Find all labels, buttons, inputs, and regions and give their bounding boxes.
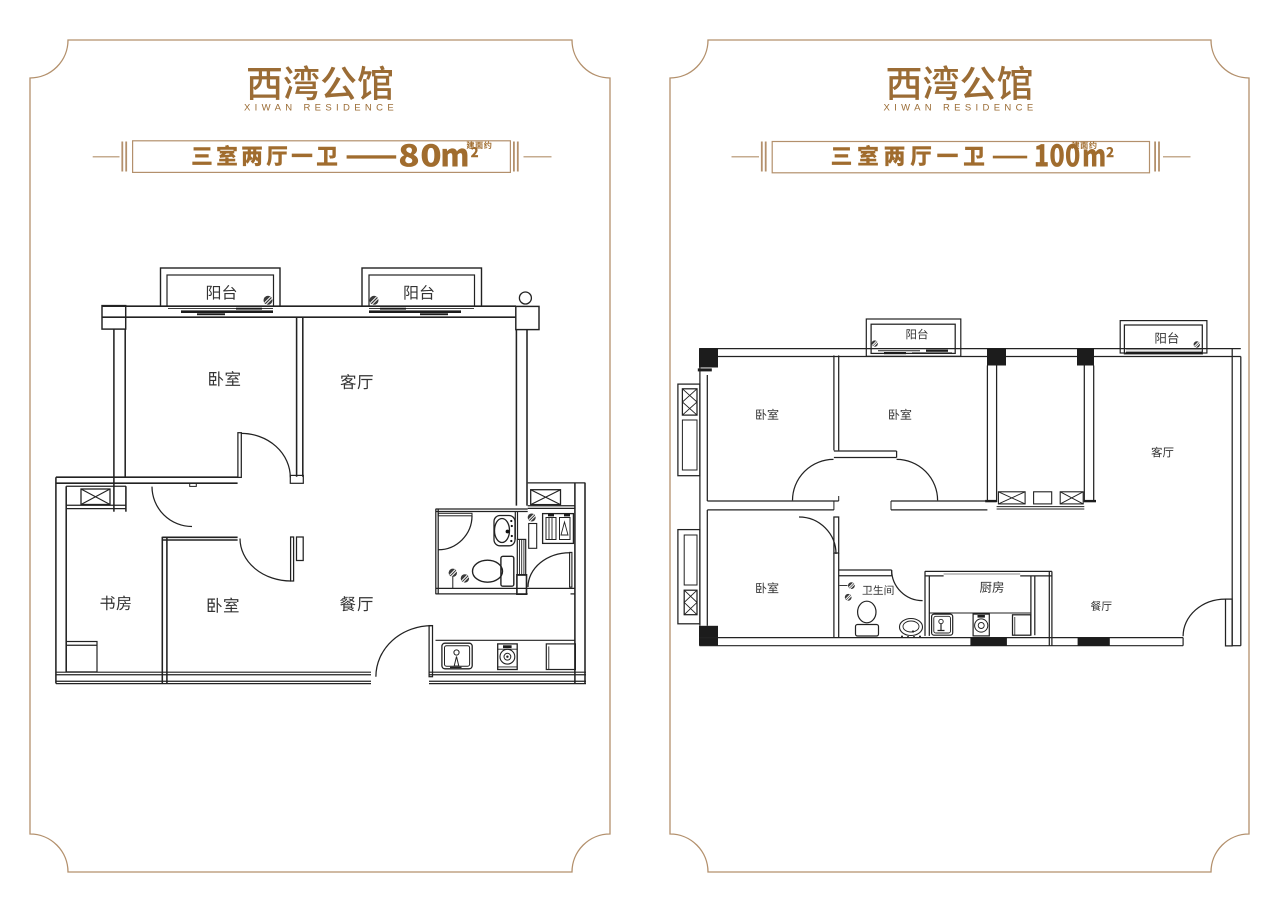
svg-text:XIWAN RESIDENCE: XIWAN RESIDENCE [883,103,1037,114]
svg-text:XIWAN RESIDENCE: XIWAN RESIDENCE [244,103,398,114]
